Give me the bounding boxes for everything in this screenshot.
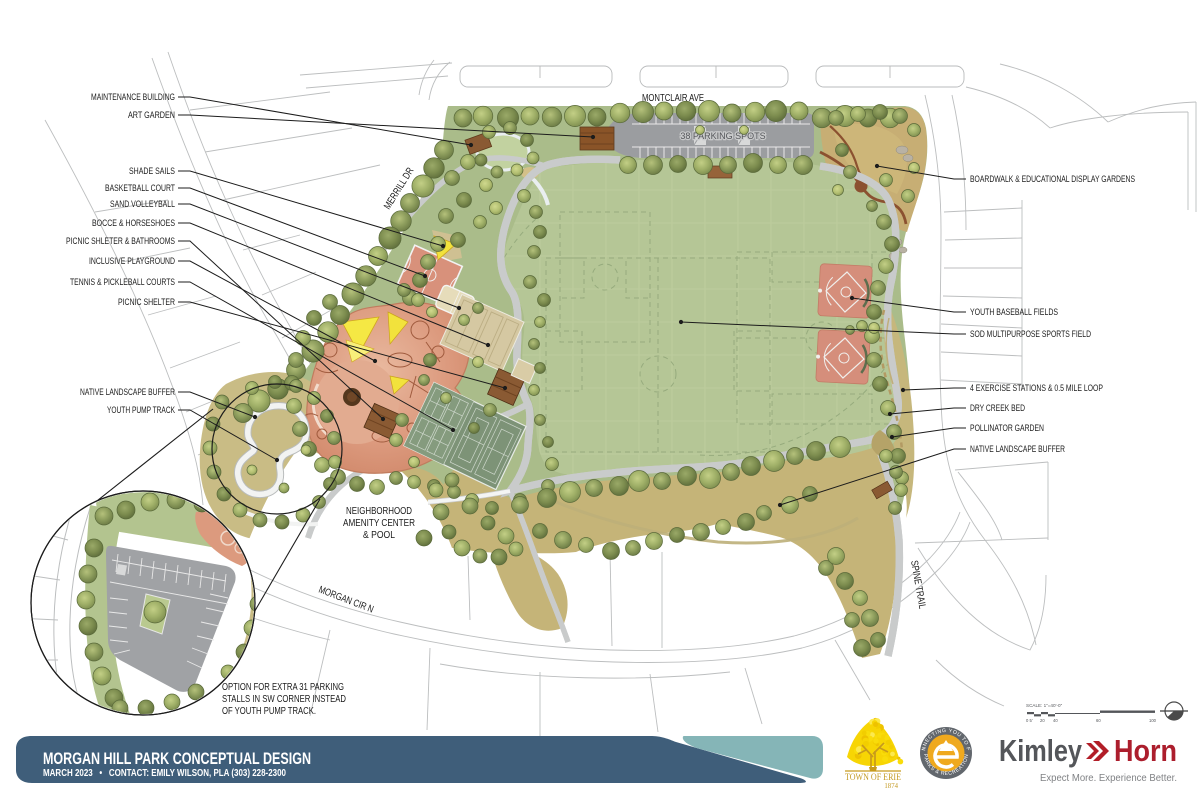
svg-text:SOD MULTIPURPOSE SPORTS FIELD: SOD MULTIPURPOSE SPORTS FIELD: [970, 329, 1091, 339]
svg-text:MORGAN HILL PARK CONCEPTUAL DE: MORGAN HILL PARK CONCEPTUAL DESIGN: [43, 750, 311, 768]
svg-text:BASKETBALL COURT: BASKETBALL COURT: [105, 183, 175, 193]
svg-text:1874: 1874: [884, 783, 898, 790]
svg-text:60: 60: [1096, 718, 1101, 723]
svg-text:38 PARKING SPOTS: 38 PARKING SPOTS: [680, 131, 765, 141]
svg-text:NATIVE LANDSCAPE BUFFER: NATIVE LANDSCAPE BUFFER: [80, 387, 175, 397]
svg-text:INCLUSIVE PLAYGROUND: INCLUSIVE PLAYGROUND: [89, 256, 175, 266]
svg-text:TOWN OF ERIE: TOWN OF ERIE: [845, 772, 901, 783]
svg-text:POLLINATOR GARDEN: POLLINATOR GARDEN: [970, 423, 1044, 433]
svg-text:SHADE SAILS: SHADE SAILS: [129, 166, 175, 176]
svg-text:OF YOUTH PUMP TRACK.: OF YOUTH PUMP TRACK.: [222, 706, 316, 717]
svg-text:NEIGHBORHOOD: NEIGHBORHOOD: [346, 506, 412, 517]
svg-text:DRY CREEK BED: DRY CREEK BED: [970, 403, 1025, 413]
svg-text:STALLS IN SW CORNER INSTEAD: STALLS IN SW CORNER INSTEAD: [222, 694, 346, 705]
svg-text:Expect More. Experience Better: Expect More. Experience Better.: [1040, 773, 1177, 784]
svg-text:ART GARDEN: ART GARDEN: [128, 110, 175, 120]
svg-text:0 5’: 0 5’: [1026, 718, 1033, 723]
svg-text:OPTION FOR EXTRA 31 PARKING: OPTION FOR EXTRA 31 PARKING: [222, 682, 344, 693]
svg-text:20: 20: [1040, 718, 1045, 723]
svg-text:40: 40: [1053, 718, 1058, 723]
svg-text:YOUTH BASEBALL FIELDS: YOUTH BASEBALL FIELDS: [970, 307, 1058, 317]
svg-text:& POOL: & POOL: [363, 530, 395, 541]
svg-text:AMENITY CENTER: AMENITY CENTER: [343, 518, 415, 529]
svg-text:BOARDWALK & EDUCATIONAL DISPLA: BOARDWALK & EDUCATIONAL DISPLAY GARDENS: [970, 174, 1135, 184]
svg-text:Horn: Horn: [1114, 733, 1177, 768]
svg-text:SAND VOLLEYBALL: SAND VOLLEYBALL: [110, 199, 175, 209]
svg-text:PICNIC SHLETER & BATHROOMS: PICNIC SHLETER & BATHROOMS: [66, 236, 175, 246]
svg-text:4 EXERCISE STATIONS & 0.5 MILE: 4 EXERCISE STATIONS & 0.5 MILE LOOP: [970, 383, 1103, 393]
svg-text:NATIVE LANDSCAPE BUFFER: NATIVE LANDSCAPE BUFFER: [970, 444, 1065, 454]
svg-text:100: 100: [1149, 718, 1157, 723]
svg-text:YOUTH PUMP TRACK: YOUTH PUMP TRACK: [107, 405, 176, 415]
svg-text:SCALE: 1”=40’-0”: SCALE: 1”=40’-0”: [1026, 703, 1063, 708]
svg-text:Kimley: Kimley: [999, 733, 1083, 768]
svg-text:TENNIS & PICKLEBALL COURTS: TENNIS & PICKLEBALL COURTS: [70, 277, 175, 287]
svg-text:MAINTENANCE BUILDING: MAINTENANCE BUILDING: [91, 92, 175, 102]
svg-text:PICNIC SHELTER: PICNIC SHELTER: [118, 297, 175, 307]
svg-text:BOCCE & HORSESHOES: BOCCE & HORSESHOES: [92, 218, 175, 228]
svg-text:MARCH 2023 • CONTACT: EMIL: MARCH 2023 • CONTACT: EMILY WILSON, PLA …: [43, 768, 286, 779]
svg-text:MONTCLAIR AVE: MONTCLAIR AVE: [642, 93, 704, 104]
